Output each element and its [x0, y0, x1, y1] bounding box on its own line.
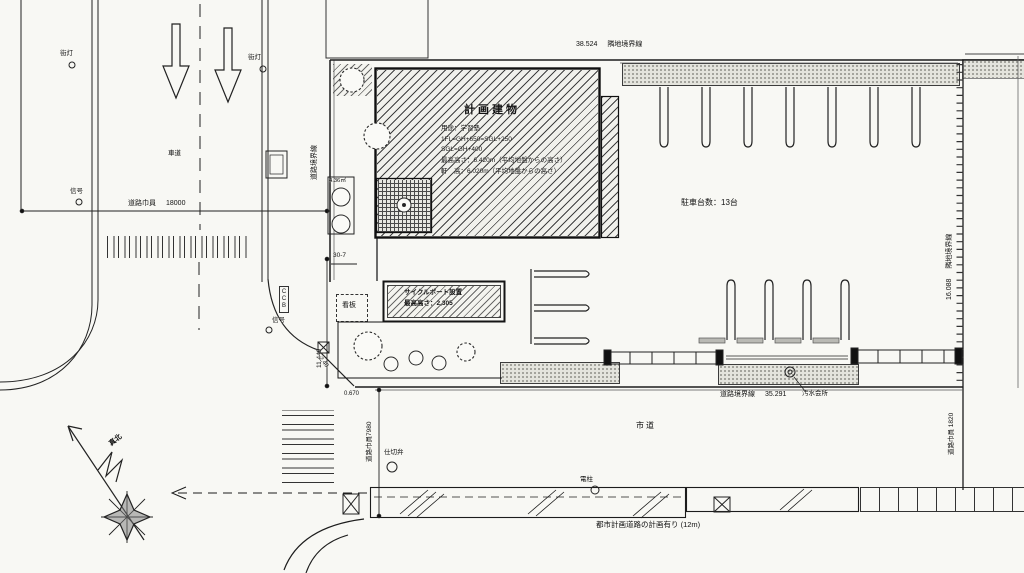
plan-linework [0, 0, 1024, 573]
building-title: 計画建物 [464, 104, 520, 117]
city-road-label: 市道 [636, 421, 656, 431]
building-fl: 1FL=GH+650=SGL+250 [441, 135, 567, 146]
area-436-label: 4.36㎡ [329, 178, 346, 185]
west-road-width-value: 18000 [166, 200, 185, 207]
top-boundary-name: 隣地境界線 [607, 41, 642, 48]
streetlight2-label: 街灯 [248, 54, 261, 62]
left-boundary-label: 道路境界線 [311, 145, 319, 180]
wheel-stops [699, 338, 839, 343]
top-boundary-dim: 38.524 [576, 41, 597, 48]
dim-0670-label: 0.670 [344, 391, 359, 398]
building-sgl: SGL=GH+400 [441, 145, 567, 156]
right-boundary-label: 16.088隣地境界線 [946, 234, 954, 300]
right-boundary-dim: 16.088 [946, 279, 953, 300]
sewage-label: 汚水会所 [802, 390, 828, 398]
east-road-width-label: 道路巾員 1820 [948, 413, 956, 455]
utility-xboxes [318, 342, 730, 514]
cycle-port-label2: 最高高さ：2,305 [404, 300, 453, 308]
parking-count-label: 駐車台数：13台 [681, 198, 738, 208]
south-boundary-name: 道路境界線 [720, 391, 755, 398]
trees [332, 68, 475, 371]
top-boundary-label: 38.524隣地境界線 [576, 41, 642, 49]
dim-30-7-label: 30-7 [333, 252, 346, 260]
site-plan-drawing: 38.524隣地境界線 16.088隣地境界線 道路境界線 道路境界線35.29… [0, 0, 1024, 573]
west-road-lines [0, 0, 354, 390]
signboard-label: 看板 [342, 302, 356, 310]
south-road-lines [172, 387, 963, 573]
building-max-height: 最高高さ：6.420m（平均地盤からの高さ） [441, 156, 567, 167]
south-road-width-label: 道路巾員7980 [366, 422, 374, 462]
west-road-width-label: 道路巾員18000 [128, 200, 185, 208]
west-road-width-name: 道路巾員 [128, 200, 156, 207]
utility-pole-label: 電柱 [580, 476, 593, 484]
building-notes: 用途：学習塾 1FL=GH+650=SGL+250 SGL=GH+400 最高高… [441, 124, 567, 178]
roadway-label: 車道 [168, 150, 181, 158]
parking-stall-markers [531, 87, 920, 344]
feature-circles [69, 62, 805, 494]
signal2-label: 信号 [272, 317, 285, 325]
south-boundary-dim: 35.291 [765, 391, 786, 398]
gate-valve-label: 仕切弁 [384, 449, 404, 457]
cycle-port-label1: サイクルポート設置 [404, 289, 462, 297]
building-use: 用途：学習塾 [441, 124, 567, 135]
building-eaves-height: 軒 高：6.020m（平均地盤からの高さ） [441, 167, 567, 178]
ccb-box-label: CCB [279, 286, 289, 313]
planned-road-label: 都市計画道路の計画有り (12m) [596, 520, 700, 529]
hydrant-box [266, 151, 287, 178]
traffic-arrow-icon [163, 24, 241, 102]
streetlight1-label: 街灯 [60, 50, 73, 58]
fence-rows [604, 348, 962, 365]
boundary-lines [326, 0, 1024, 490]
signal1-label: 信号 [70, 188, 83, 196]
south-boundary-label: 道路境界線35.291 [720, 391, 786, 399]
right-boundary-name: 隣地境界線 [946, 234, 953, 269]
